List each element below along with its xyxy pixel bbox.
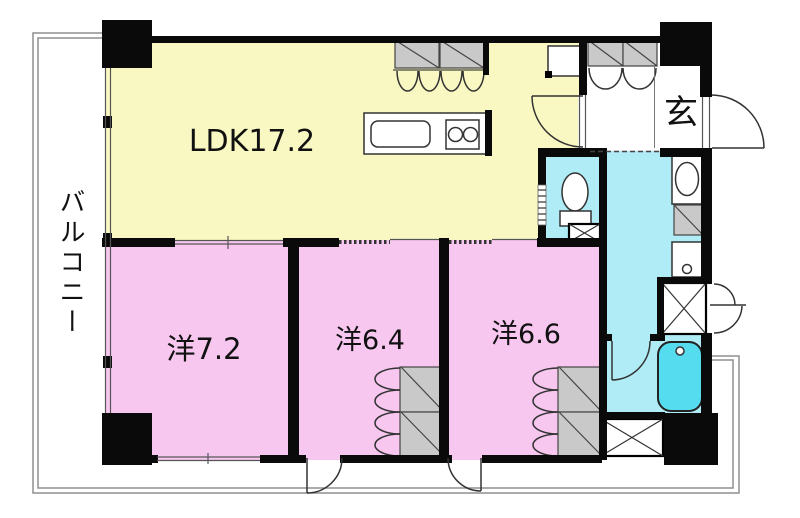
- label-ldk: LDK17.2: [189, 124, 315, 159]
- washbasin-bowl: [676, 163, 699, 196]
- hall-cabinet: [545, 46, 580, 78]
- wall-bath-bottom: [599, 412, 665, 419]
- wall-entrance-right: [700, 62, 712, 97]
- wall-top: [150, 36, 665, 43]
- wall-ldk-bedroom: [283, 238, 339, 247]
- wall-bottom: [340, 455, 452, 463]
- pillar-bottom-left: [102, 413, 152, 465]
- pillar-bottom-right: [664, 413, 718, 465]
- wall-stub-closet: [483, 36, 489, 75]
- bath-faucet: [676, 347, 684, 355]
- wall-bath-top: [599, 334, 612, 341]
- washroom-fixtures: [672, 156, 703, 277]
- toilet-sliding-door: [538, 185, 546, 225]
- pillar-top-right: [660, 22, 712, 66]
- wall-right-lower: [701, 333, 712, 415]
- room-ldk-floor: [106, 38, 604, 248]
- bathroom-fixtures: [658, 342, 702, 411]
- wall-stub-kitchen: [485, 110, 492, 156]
- wall-ldk-bedroom: [537, 238, 607, 247]
- wall-ldk-bedroom: [102, 238, 175, 247]
- kitchen-sink: [371, 121, 430, 147]
- toilet-bowl: [562, 173, 588, 211]
- label-entrance: 玄: [664, 93, 698, 133]
- stove-burner: [449, 128, 463, 142]
- label-bedroom1: 洋7.2: [166, 332, 241, 366]
- trunk-door-arc: [714, 306, 742, 333]
- wall-partition-2-3: [439, 238, 449, 460]
- wall-trunk-left: [657, 277, 664, 337]
- wall-bottom: [150, 455, 158, 463]
- wall-toilet-left: [538, 157, 546, 185]
- washer-drain: [683, 265, 692, 274]
- kitchen: [364, 113, 487, 154]
- label-balcony: バルコニー: [55, 188, 85, 338]
- label-bedroom3: 洋6.6: [491, 319, 561, 350]
- stove-burner: [464, 128, 478, 142]
- entrance-door-arc: [712, 95, 764, 148]
- wall-trunk-top: [657, 277, 712, 284]
- wall-right-upper: [701, 148, 712, 284]
- wall-bottom: [260, 455, 306, 463]
- bedroom3-door-arc: [448, 458, 481, 491]
- trunk-door-arc: [714, 284, 735, 305]
- cabinet-box: [548, 46, 580, 76]
- cabinet-dot: [545, 71, 552, 78]
- trunk-room: [662, 283, 706, 334]
- pillar-top-left: [102, 20, 152, 68]
- wall-partition-1-2: [288, 247, 299, 460]
- wall-ldk-hall: [579, 36, 587, 95]
- floor-plan: LDK17.2 洋7.2 洋6.4 洋6.6 玄 バルコニー: [0, 0, 800, 518]
- wall-bottom: [482, 455, 602, 463]
- label-bedroom2: 洋6.4: [335, 325, 405, 356]
- pipe-space: [601, 419, 663, 456]
- wall-toilet-top: [538, 148, 607, 157]
